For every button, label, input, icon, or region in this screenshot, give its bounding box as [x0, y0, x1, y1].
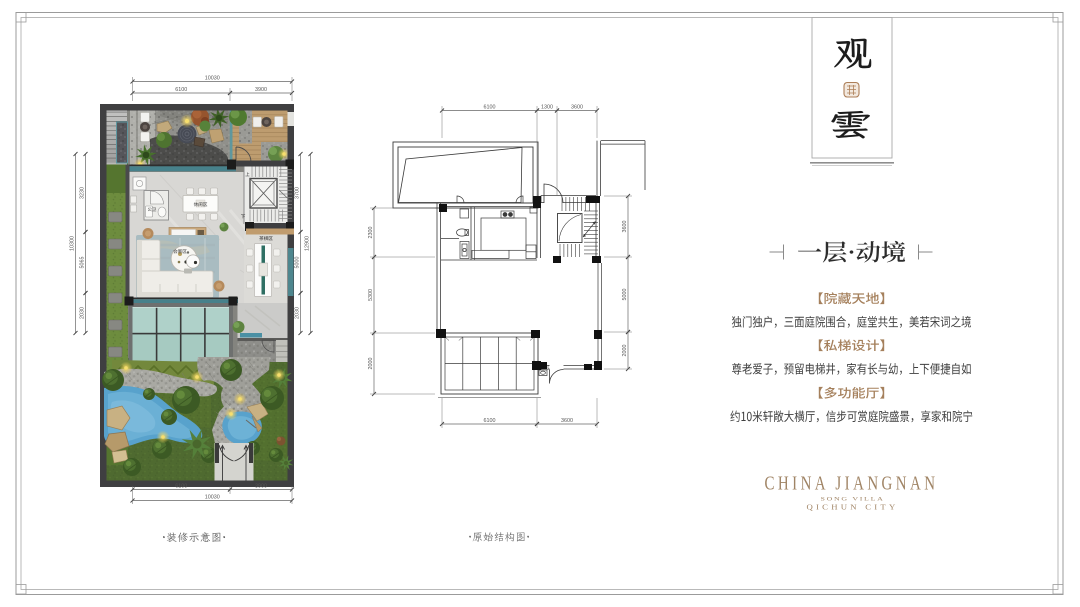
- svg-text:6100: 6100: [175, 484, 187, 490]
- svg-text:2030: 2030: [80, 307, 86, 319]
- svg-text:6100: 6100: [484, 418, 496, 424]
- svg-text:6100: 6100: [175, 87, 187, 93]
- svg-text:5300: 5300: [368, 289, 374, 301]
- svg-text:5065: 5065: [80, 257, 86, 269]
- svg-text:5000: 5000: [622, 289, 628, 301]
- svg-text:3700: 3700: [295, 187, 301, 199]
- svg-text:3600: 3600: [571, 105, 583, 111]
- svg-text:5000: 5000: [295, 257, 301, 269]
- svg-text:3230: 3230: [80, 187, 86, 199]
- svg-text:2000: 2000: [622, 345, 628, 357]
- svg-text:3900: 3900: [255, 484, 267, 490]
- svg-text:1300: 1300: [541, 105, 553, 111]
- svg-text:10030: 10030: [205, 76, 220, 82]
- svg-text:CHINA JIANGNAN: CHINA JIANGNAN: [765, 474, 939, 495]
- svg-text:SONG VILLA: SONG VILLA: [821, 497, 885, 503]
- svg-text:2000: 2000: [368, 358, 374, 370]
- svg-text:3600: 3600: [561, 418, 573, 424]
- svg-text:2030: 2030: [295, 307, 301, 319]
- svg-text:3900: 3900: [255, 87, 267, 93]
- svg-text:QICHUN CITY: QICHUN CITY: [807, 504, 899, 512]
- svg-text:10300: 10300: [70, 236, 76, 251]
- svg-text:10030: 10030: [205, 495, 220, 501]
- svg-text:6100: 6100: [484, 105, 496, 111]
- svg-text:2300: 2300: [368, 227, 374, 239]
- svg-text:3600: 3600: [622, 221, 628, 233]
- svg-text:12900: 12900: [305, 236, 311, 251]
